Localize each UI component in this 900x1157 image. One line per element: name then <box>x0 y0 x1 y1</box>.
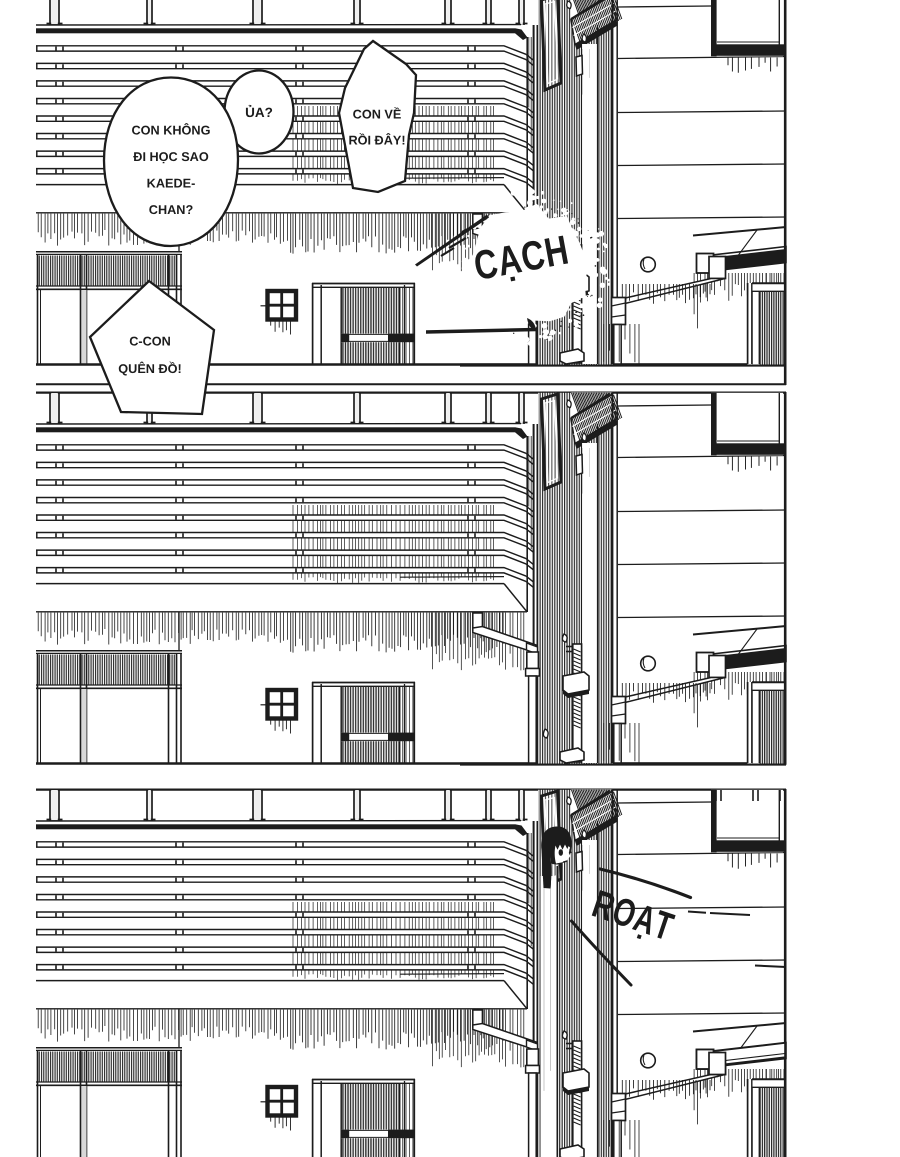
svg-text:CON VỀ: CON VỀ <box>353 107 402 122</box>
svg-text:RỒI ĐÂY!: RỒI ĐÂY! <box>348 133 405 148</box>
svg-text:ĐI HỌC SAO: ĐI HỌC SAO <box>133 150 209 164</box>
svg-text:CHAN?: CHAN? <box>149 203 194 217</box>
svg-text:QUÊN ĐỒ!: QUÊN ĐỒ! <box>118 361 181 376</box>
svg-text:CON KHÔNG: CON KHÔNG <box>132 123 211 138</box>
svg-text:C-CON: C-CON <box>129 335 171 349</box>
svg-text:ỦA?: ỦA? <box>245 104 273 120</box>
svg-text:KAEDE-: KAEDE- <box>147 177 196 191</box>
